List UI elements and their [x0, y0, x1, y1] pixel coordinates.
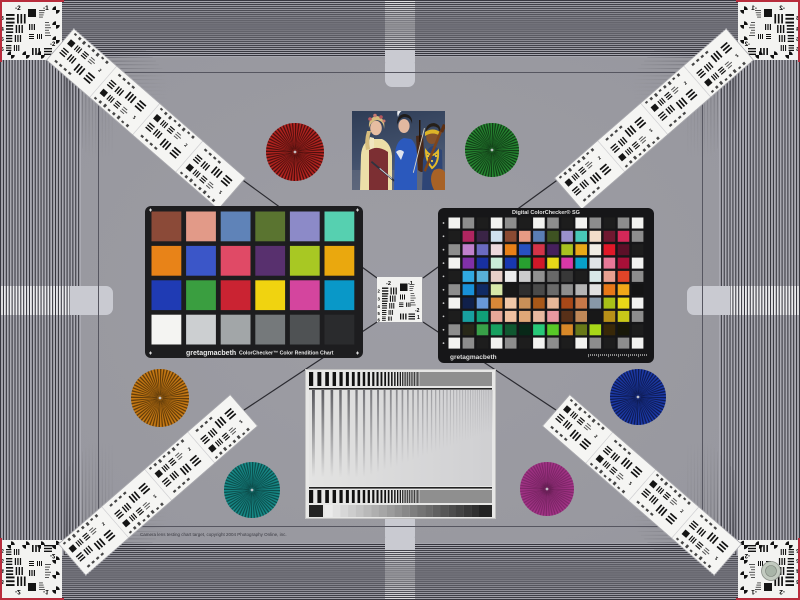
svg-text:gretagmacbeth: gretagmacbeth: [450, 354, 497, 361]
svg-text:Camera lens testing chart targ: Camera lens testing chart target, copyri…: [140, 532, 287, 537]
svg-text:1: 1: [417, 315, 420, 321]
svg-text:-2: -2: [386, 281, 391, 287]
svg-text:Digital ColorChecker® SG: Digital ColorChecker® SG: [512, 209, 580, 216]
svg-text:gretagmacbeth: gretagmacbeth: [186, 350, 236, 357]
svg-text:ColorChecker™ Color Rendition: ColorChecker™ Color Rendition Chart: [239, 351, 334, 357]
svg-text:-2: -2: [415, 308, 420, 314]
